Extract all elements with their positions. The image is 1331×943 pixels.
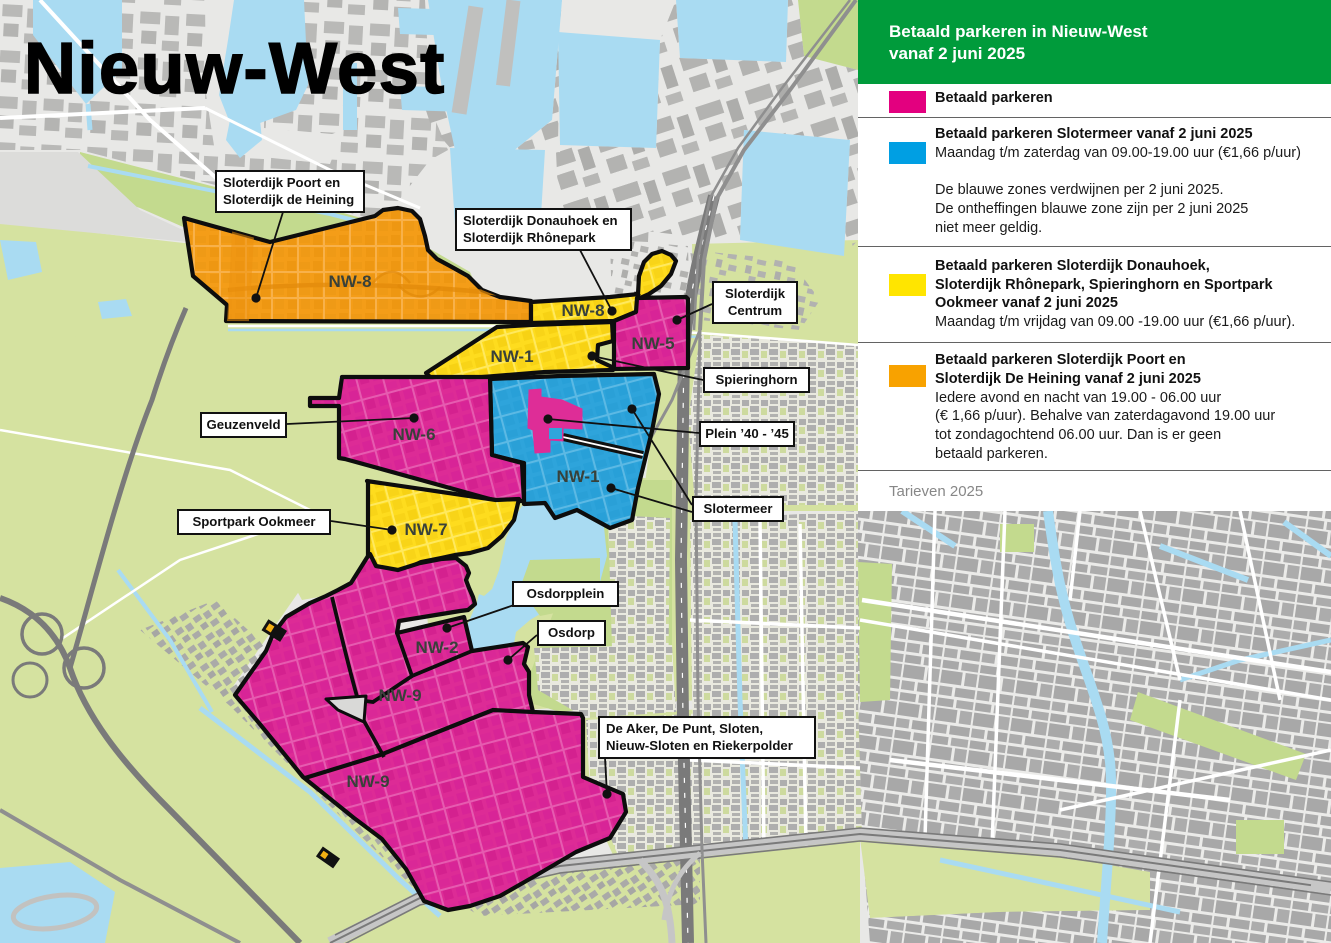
svg-text:NW-6: NW-6 — [392, 425, 435, 444]
svg-text:NW-2: NW-2 — [415, 638, 458, 657]
svg-text:NW-9: NW-9 — [346, 772, 389, 791]
svg-text:NW-1: NW-1 — [556, 467, 599, 486]
svg-text:NW-5: NW-5 — [631, 334, 674, 353]
svg-text:NW-7: NW-7 — [404, 520, 447, 539]
svg-text:NW-8: NW-8 — [561, 301, 604, 320]
svg-text:NW-1: NW-1 — [490, 347, 533, 366]
svg-text:NW-8: NW-8 — [328, 272, 371, 291]
svg-text:NW-9: NW-9 — [378, 686, 421, 705]
